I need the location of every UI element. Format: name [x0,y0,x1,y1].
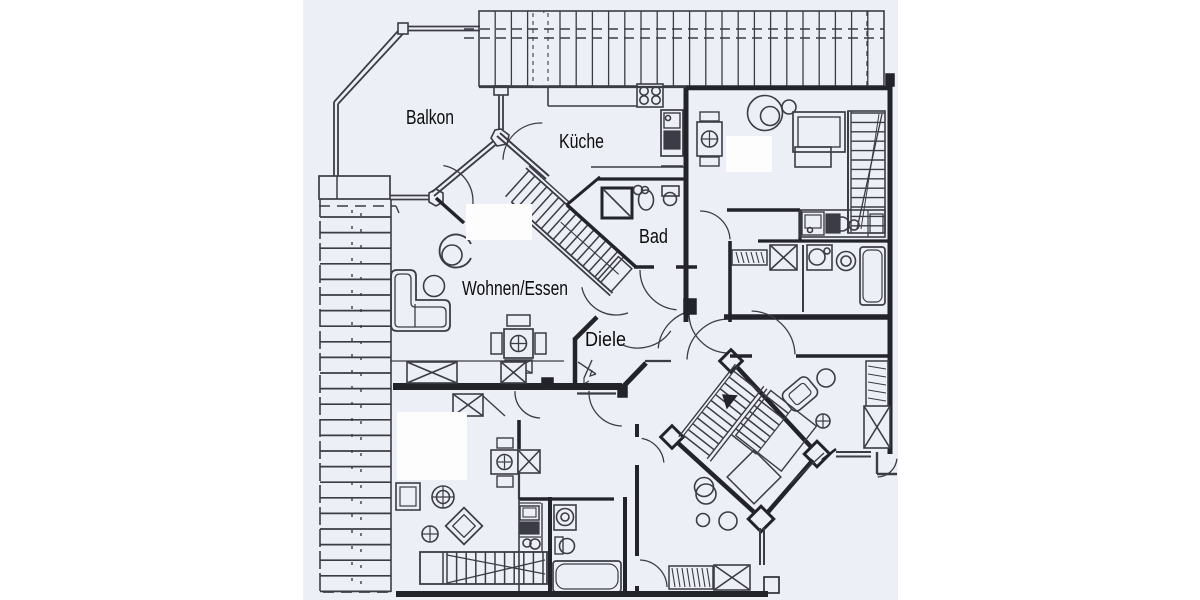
svg-text:Bad: Bad [639,226,668,248]
svg-text:Küche: Küche [559,131,604,153]
svg-text:Diele: Diele [585,329,626,351]
svg-text:Balkon: Balkon [406,107,454,129]
svg-text:Wohnen/Essen: Wohnen/Essen [462,278,568,300]
